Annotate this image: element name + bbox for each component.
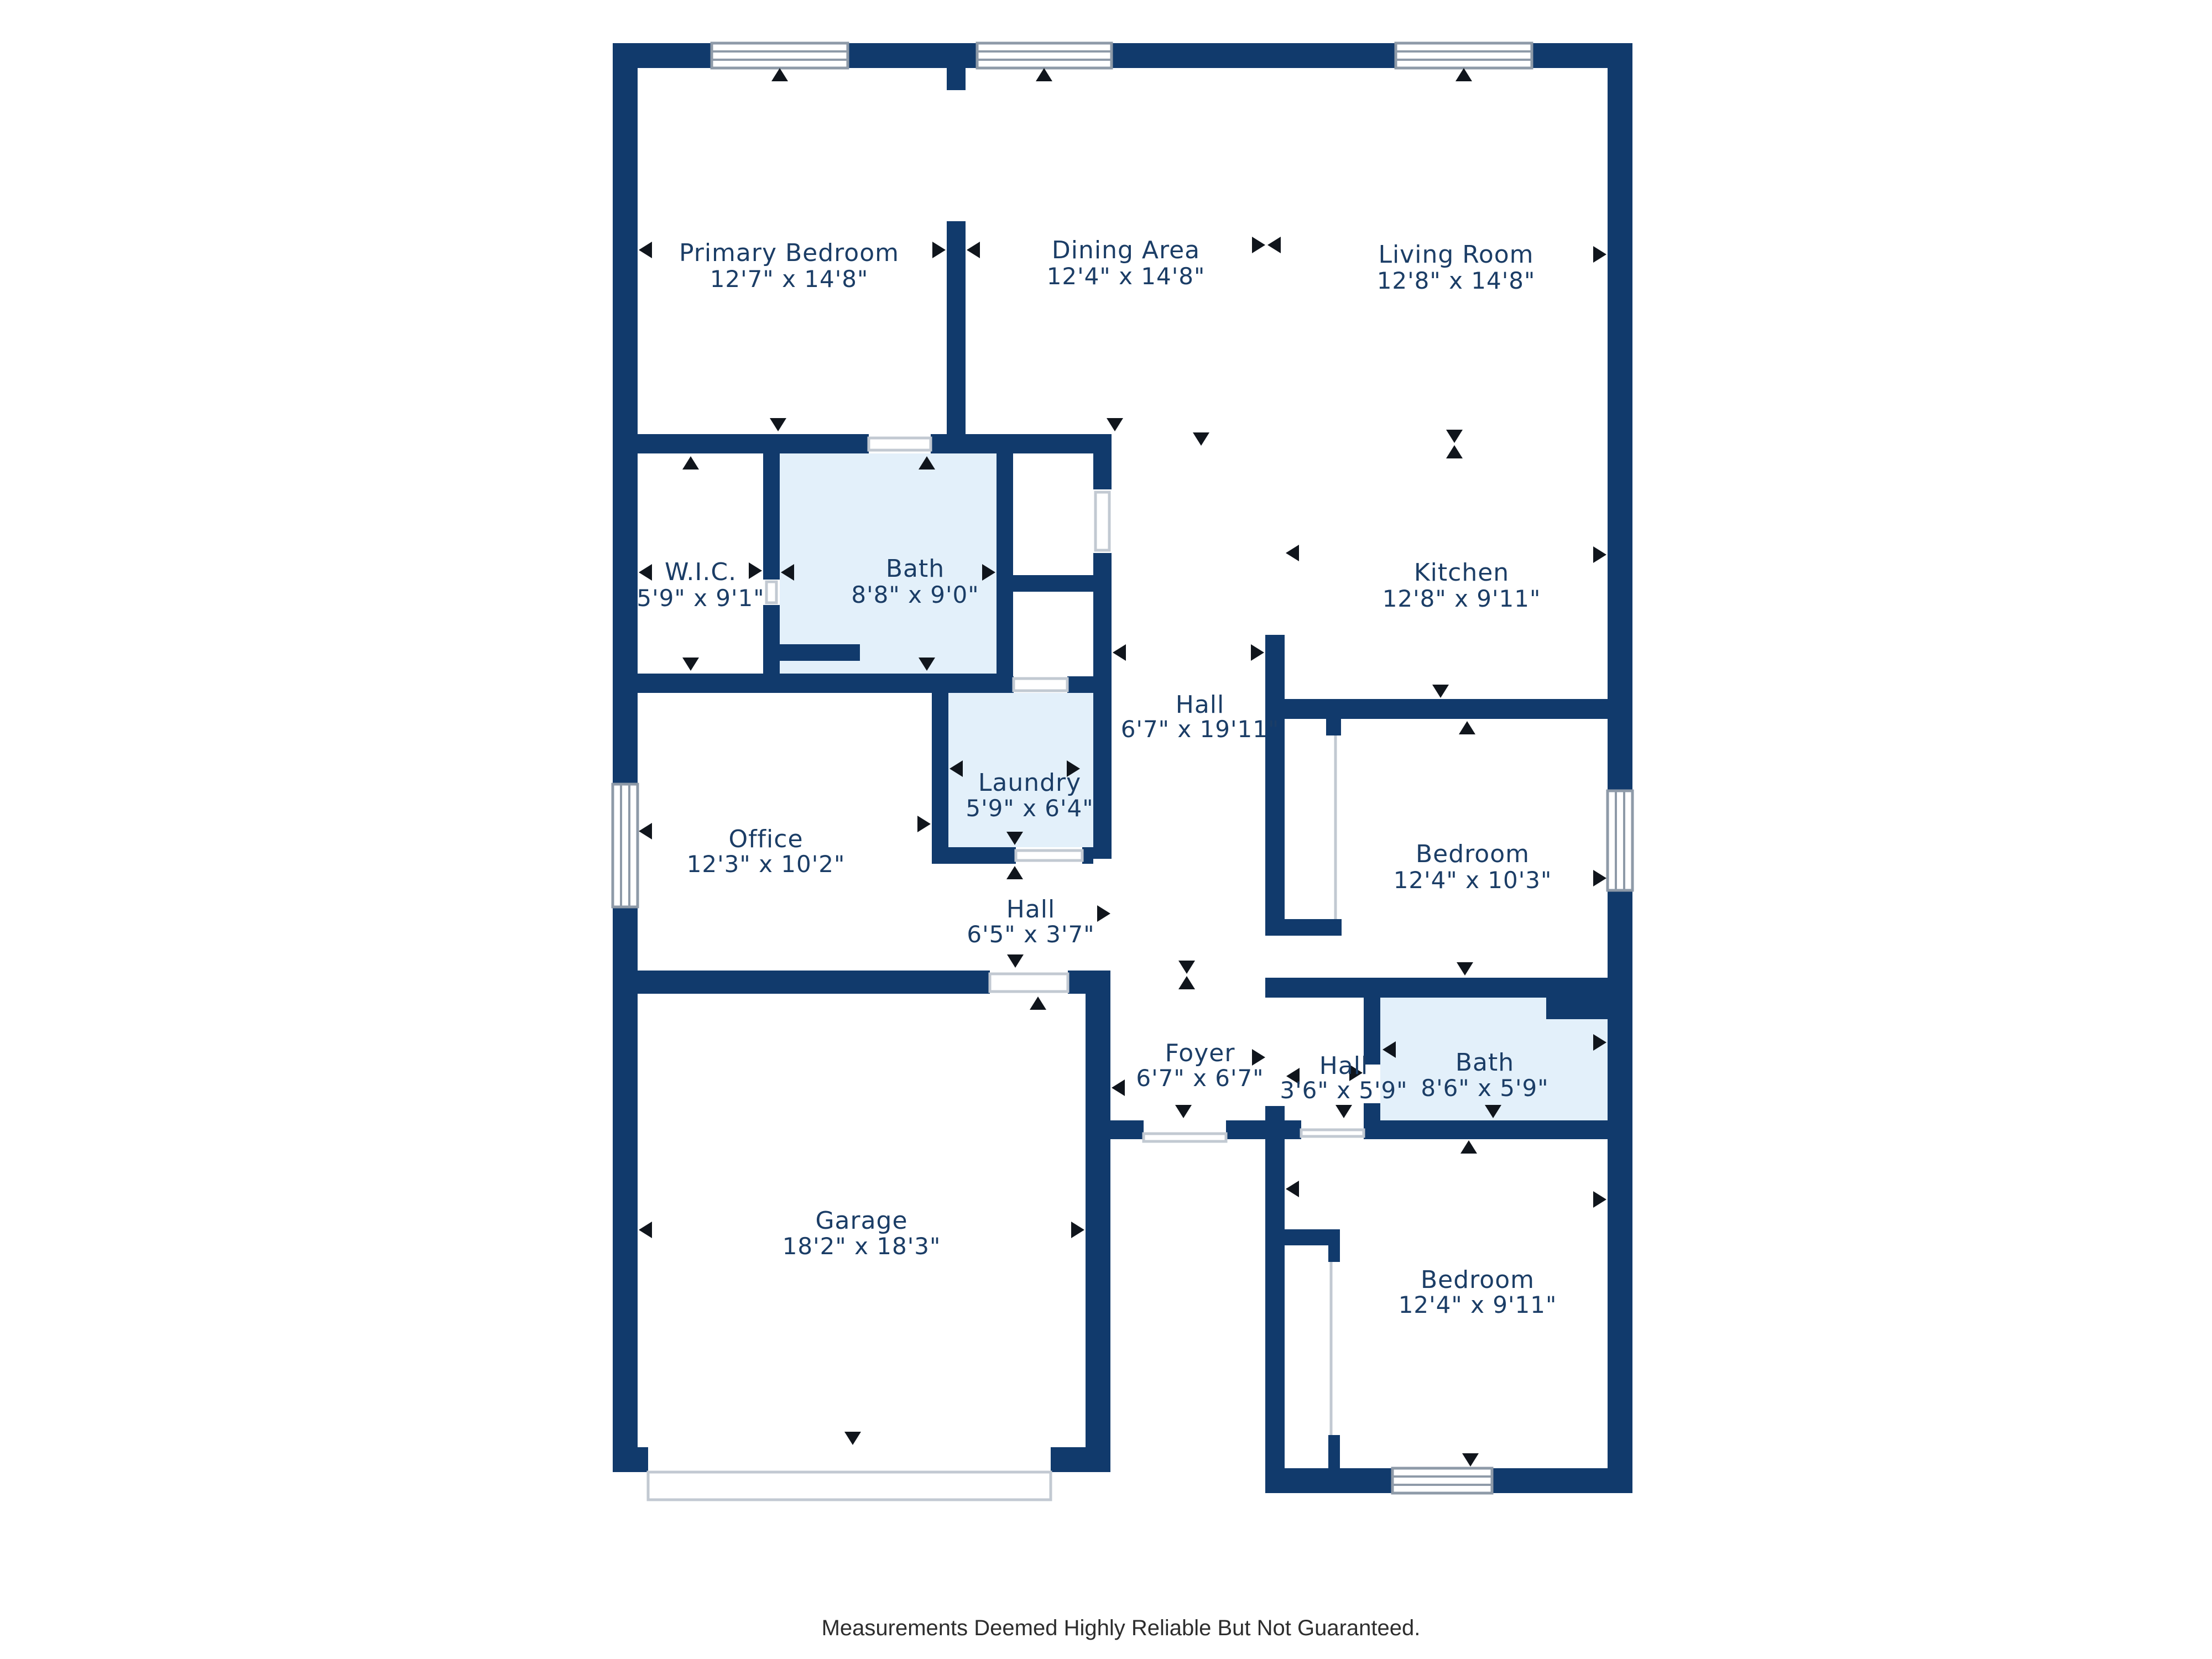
svg-text:6'5" x 3'7": 6'5" x 3'7": [967, 921, 1094, 948]
disclaimer-text: Measurements Deemed Highly Reliable But …: [822, 1616, 1421, 1640]
window-living: [1396, 43, 1532, 68]
dimension-marker: [1252, 1049, 1265, 1066]
room-garage: Garage 18'2" x 18'3": [782, 1207, 941, 1260]
upper-closet-door: [1095, 492, 1109, 550]
dimension-marker: [917, 816, 931, 832]
dimension-marker: [1286, 1181, 1299, 1197]
dimension-marker: [844, 1432, 861, 1445]
window-bedroom-mid: [1608, 791, 1632, 890]
dimension-marker: [1335, 1105, 1352, 1118]
dimension-marker: [1252, 237, 1265, 253]
svg-text:Living Room: Living Room: [1378, 241, 1533, 269]
room-primary-bedroom: Primary Bedroom 12'7" x 14'8": [679, 239, 899, 293]
room-office: Office 12'3" x 10'2": [687, 825, 846, 878]
svg-text:Laundry: Laundry: [978, 769, 1081, 797]
dimension-marker: [1030, 997, 1046, 1010]
svg-text:Hall: Hall: [1176, 691, 1225, 719]
svg-text:6'7" x 19'11": 6'7" x 19'11": [1121, 716, 1280, 743]
dimension-marker: [1593, 1191, 1606, 1208]
svg-text:8'8" x 9'0": 8'8" x 9'0": [851, 581, 979, 608]
svg-text:18'2" x 18'3": 18'2" x 18'3": [782, 1233, 941, 1260]
svg-text:12'4" x 14'8": 12'4" x 14'8": [1047, 263, 1206, 290]
wic-bath-door: [766, 582, 776, 603]
svg-text:Bedroom: Bedroom: [1421, 1266, 1535, 1294]
dimension-marker: [1455, 68, 1472, 81]
svg-text:Garage: Garage: [815, 1207, 907, 1235]
dimension-marker: [682, 658, 699, 671]
dimension-marker: [749, 562, 762, 579]
dimension-marker: [682, 456, 699, 469]
dimension-marker: [770, 418, 786, 431]
room-foyer: Foyer 6'7" x 6'7": [1136, 1039, 1264, 1092]
dimension-marker: [639, 564, 652, 581]
dimension-marker: [1462, 1453, 1479, 1467]
window-dining: [977, 43, 1112, 68]
dimension-marker: [771, 68, 788, 81]
svg-text:12'4" x 10'3": 12'4" x 10'3": [1394, 867, 1552, 894]
laundry-door: [1016, 851, 1082, 860]
svg-text:12'7" x 14'8": 12'7" x 14'8": [710, 265, 869, 293]
window-office: [613, 784, 638, 907]
dimension-marker: [1007, 954, 1024, 968]
dimension-marker: [1446, 430, 1463, 443]
svg-text:Bedroom: Bedroom: [1416, 840, 1530, 868]
dimension-marker: [1593, 546, 1606, 563]
svg-text:Kitchen: Kitchen: [1414, 559, 1509, 587]
dimension-marker: [1178, 976, 1195, 989]
svg-text:8'6" x 5'9": 8'6" x 5'9": [1421, 1074, 1548, 1102]
svg-text:W.I.C.: W.I.C.: [665, 558, 737, 586]
dimension-marker: [1036, 68, 1052, 81]
svg-text:Hall: Hall: [1319, 1052, 1369, 1080]
window-primary-bedroom: [712, 43, 848, 68]
svg-text:3'6" x 5'9": 3'6" x 5'9": [1280, 1077, 1407, 1104]
svg-text:12'4" x 9'11": 12'4" x 9'11": [1399, 1291, 1557, 1318]
svg-text:Primary Bedroom: Primary Bedroom: [679, 239, 899, 267]
garage-door: [648, 1472, 1051, 1500]
dimension-marker: [1097, 905, 1110, 922]
svg-text:5'9" x 9'1": 5'9" x 9'1": [637, 585, 764, 612]
dimension-marker: [1193, 432, 1209, 446]
dimension-marker: [639, 823, 652, 839]
svg-text:Dining Area: Dining Area: [1052, 236, 1200, 264]
dimension-marker: [1457, 962, 1473, 975]
dimension-marker: [1432, 685, 1449, 698]
primary-bath-door: [869, 438, 931, 450]
dimension-marker: [1446, 445, 1463, 458]
dimension-marker: [1071, 1222, 1084, 1238]
dimension-marker: [1460, 1140, 1477, 1154]
dimension-marker: [639, 1222, 652, 1238]
svg-text:5'9" x 6'4": 5'9" x 6'4": [966, 795, 1093, 822]
svg-text:Office: Office: [728, 825, 803, 853]
window-bedroom-bottom: [1392, 1468, 1492, 1493]
dimension-marker: [1175, 1105, 1192, 1118]
svg-text:Foyer: Foyer: [1165, 1039, 1235, 1067]
room-kitchen: Kitchen 12'8" x 9'11": [1383, 559, 1541, 612]
room-living-room: Living Room 12'8" x 14'8": [1377, 241, 1536, 294]
svg-text:12'8" x 9'11": 12'8" x 9'11": [1383, 585, 1541, 612]
dimension-marker: [1006, 866, 1023, 879]
dimension-marker: [1593, 870, 1606, 886]
dimension-marker: [932, 242, 946, 258]
dimension-marker: [1286, 545, 1299, 561]
svg-text:Bath: Bath: [886, 555, 945, 583]
room-laundry: Laundry 5'9" x 6'4": [966, 769, 1093, 822]
room-wic: W.I.C. 5'9" x 9'1": [637, 558, 764, 612]
room-highlights: [780, 453, 1608, 1120]
dimension-marker: [1178, 961, 1195, 974]
room-hall-main: Hall 6'7" x 19'11": [1121, 691, 1280, 743]
dimension-marker: [1251, 644, 1264, 661]
floor-plan-canvas: Primary Bedroom 12'7" x 14'8" Dining Are…: [0, 0, 2212, 1659]
dimension-marker: [1459, 721, 1475, 734]
svg-text:12'8" x 14'8": 12'8" x 14'8": [1377, 267, 1536, 294]
svg-text:12'3" x 10'2": 12'3" x 10'2": [687, 851, 846, 878]
dimension-marker: [1593, 246, 1606, 263]
dimension-marker: [639, 242, 652, 258]
svg-text:Hall: Hall: [1006, 895, 1056, 924]
svg-text:Bath: Bath: [1455, 1048, 1514, 1077]
dimension-marker: [1113, 644, 1126, 661]
room-hall-small: Hall 6'5" x 3'7": [967, 895, 1094, 948]
hall-garage-door: [990, 974, 1068, 992]
front-door: [1144, 1134, 1226, 1141]
room-bedroom-mid: Bedroom 12'4" x 10'3": [1394, 840, 1552, 894]
dimension-marker: [1267, 237, 1281, 253]
lower-closet-door: [1014, 679, 1067, 691]
dimension-marker: [1112, 1079, 1125, 1096]
rear-bedroom-door: [1301, 1130, 1364, 1136]
room-dining-area: Dining Area 12'4" x 14'8": [1047, 236, 1206, 290]
svg-text:6'7" x 6'7": 6'7" x 6'7": [1136, 1065, 1264, 1092]
dimension-marker: [967, 242, 980, 258]
dimension-marker: [1107, 418, 1123, 431]
floor-plan: Primary Bedroom 12'7" x 14'8" Dining Are…: [0, 0, 2212, 1659]
room-bedroom-bottom: Bedroom 12'4" x 9'11": [1399, 1266, 1557, 1318]
